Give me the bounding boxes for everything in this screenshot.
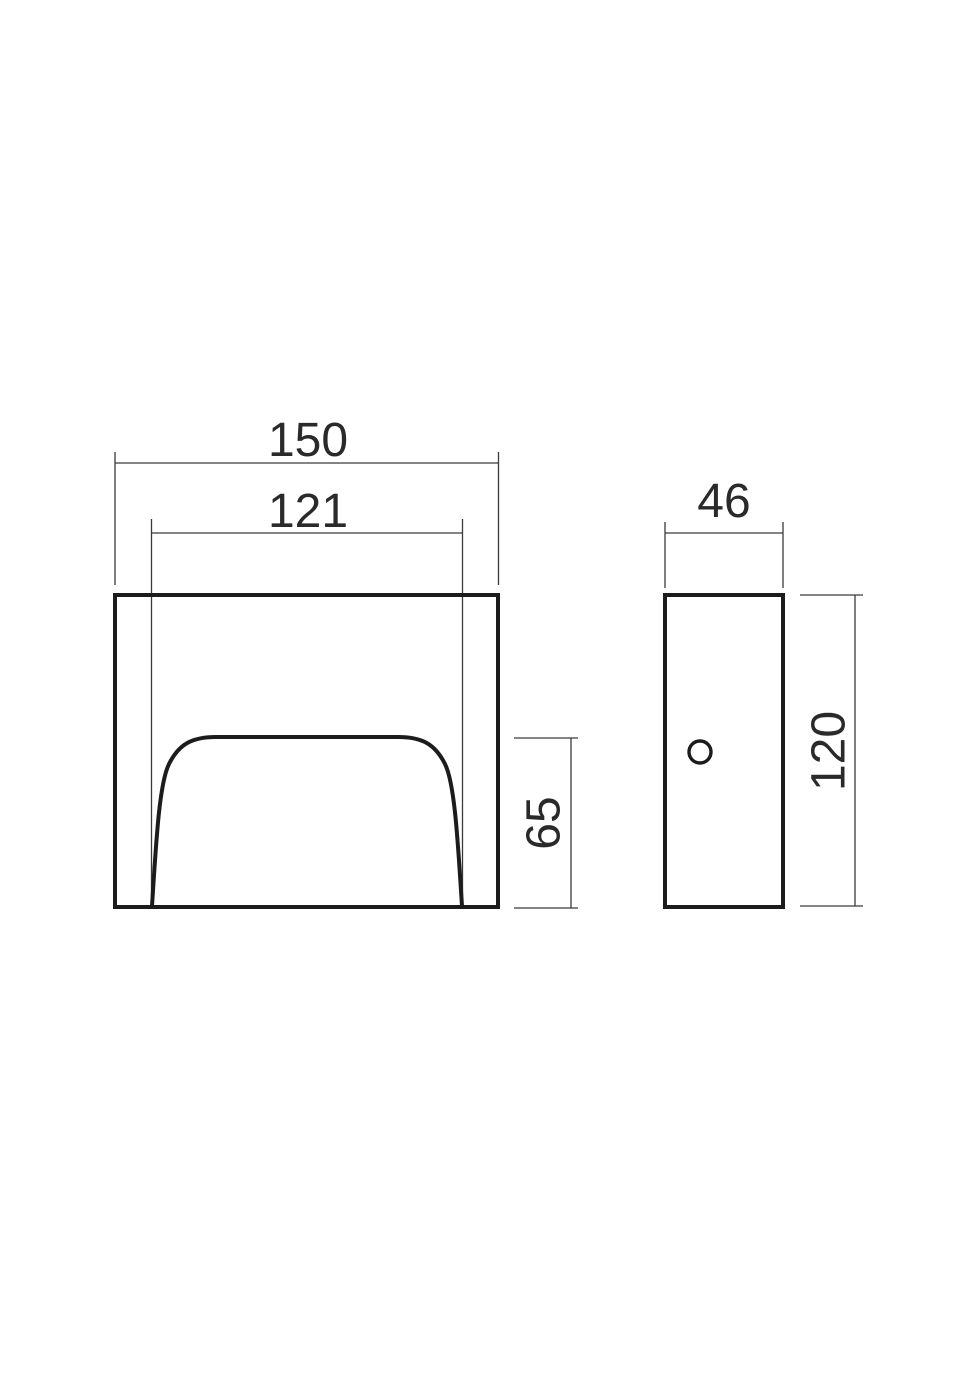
- dim-opening-width: 121: [152, 485, 463, 905]
- technical-drawing-canvas: 150 121 65: [0, 0, 980, 1400]
- mounting-hole: [689, 741, 711, 763]
- lamp-opening-profile: [152, 737, 462, 906]
- side-view-outline: [665, 595, 783, 907]
- front-view-outline: [115, 595, 498, 907]
- dim-opening-height: 65: [514, 738, 578, 908]
- dim-label-overall-width: 150: [268, 414, 348, 467]
- dim-label-depth: 46: [697, 475, 750, 528]
- dim-label-height: 120: [803, 711, 856, 791]
- dim-label-opening-width: 121: [268, 485, 348, 538]
- dim-depth: 46: [665, 475, 783, 588]
- dim-height: 120: [800, 595, 863, 906]
- drawing-page: 150 121 65: [0, 0, 980, 1400]
- side-view: 46 120: [665, 475, 863, 907]
- front-view: 150 121 65: [115, 414, 578, 908]
- dim-label-opening-height: 65: [518, 796, 571, 849]
